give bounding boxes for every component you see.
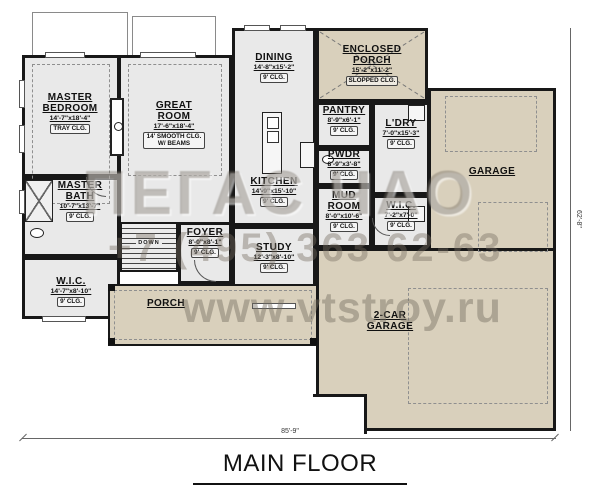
garage-slab-trace: [408, 288, 548, 404]
porch-post: [310, 338, 317, 345]
label-powder: PWDR 8'-9"x3'-8" 9' CLG.: [316, 149, 372, 180]
porch-post: [108, 338, 115, 345]
toilet: [30, 228, 44, 238]
label-enclosed-porch: ENCLOSED PORCH 15'-2"x11'-2" SLOPPED CLG…: [326, 44, 418, 86]
kitchen-island: [262, 112, 282, 174]
label-master-bath: MASTER BATH 10'-7"x13'-7" 9' CLG.: [42, 180, 118, 222]
overhang-outline: [32, 12, 128, 56]
label-dining: DINING 14'-8"x15'-2" 9' CLG.: [232, 52, 316, 83]
window: [252, 303, 296, 309]
window: [19, 125, 25, 153]
bottom-dimension-line: [22, 438, 556, 439]
fireplace: [110, 98, 124, 156]
fireplace-ring: [114, 122, 123, 131]
window: [42, 316, 86, 322]
overhang-outline: [132, 16, 216, 56]
label-wic-left: W.I.C. 14'-7"x8'-10" 9' CLG.: [22, 276, 120, 307]
garage-slab-trace: [445, 96, 537, 152]
label-porch: PORCH: [132, 298, 200, 309]
label-kitchen: KITCHEN 14'-9"x15'-10" 9' CLG.: [232, 176, 316, 207]
window: [19, 80, 25, 108]
sink: [267, 131, 279, 143]
window: [140, 52, 196, 58]
label-stairs-down: DOWN: [120, 240, 178, 246]
stairs: [120, 222, 178, 272]
label-garage: GARAGE: [428, 166, 556, 177]
label-laundry: L'DRY 7'-0"x15'-3" 9' CLG.: [372, 118, 430, 149]
title-block: MAIN FLOOR: [0, 450, 600, 485]
window: [45, 52, 85, 58]
overall-width-dimension: 85'-9": [250, 428, 330, 435]
label-foyer: FOYER 8'-0"x8'-1" 9' CLG.: [178, 227, 232, 258]
overall-depth-dimension: 62'-8": [575, 210, 582, 228]
range: [300, 142, 315, 168]
page-title: MAIN FLOOR: [193, 450, 407, 485]
label-two-car-garage: 2-CAR GARAGE: [355, 310, 425, 332]
right-dimension-line: [570, 28, 571, 431]
label-great-room: GREAT ROOM 17'-6"x18'-4" 14' SMOOTH CLG.…: [145, 100, 203, 149]
label-study: STUDY 12'-3"x8'-10" 9' CLG.: [232, 242, 316, 273]
label-master-bedroom: MASTER BEDROOM 14'-7"x18'-4" TRAY CLG.: [30, 92, 110, 134]
label-mud-room: MUD ROOM 8'-0"x10'-6" 9' CLG.: [316, 190, 372, 232]
garage-slab-trace: [478, 202, 548, 252]
floor-plan: MASTER BEDROOM 14'-7"x18'-4" TRAY CLG. G…: [0, 0, 600, 490]
label-wic-right: W.I.C. 7'-2"x7'-0" 9' CLG.: [372, 200, 430, 231]
label-pantry: PANTRY 8'-9"x6'-1" 9' CLG.: [316, 105, 372, 136]
window: [280, 25, 306, 31]
sink: [267, 117, 279, 129]
window: [244, 25, 270, 31]
